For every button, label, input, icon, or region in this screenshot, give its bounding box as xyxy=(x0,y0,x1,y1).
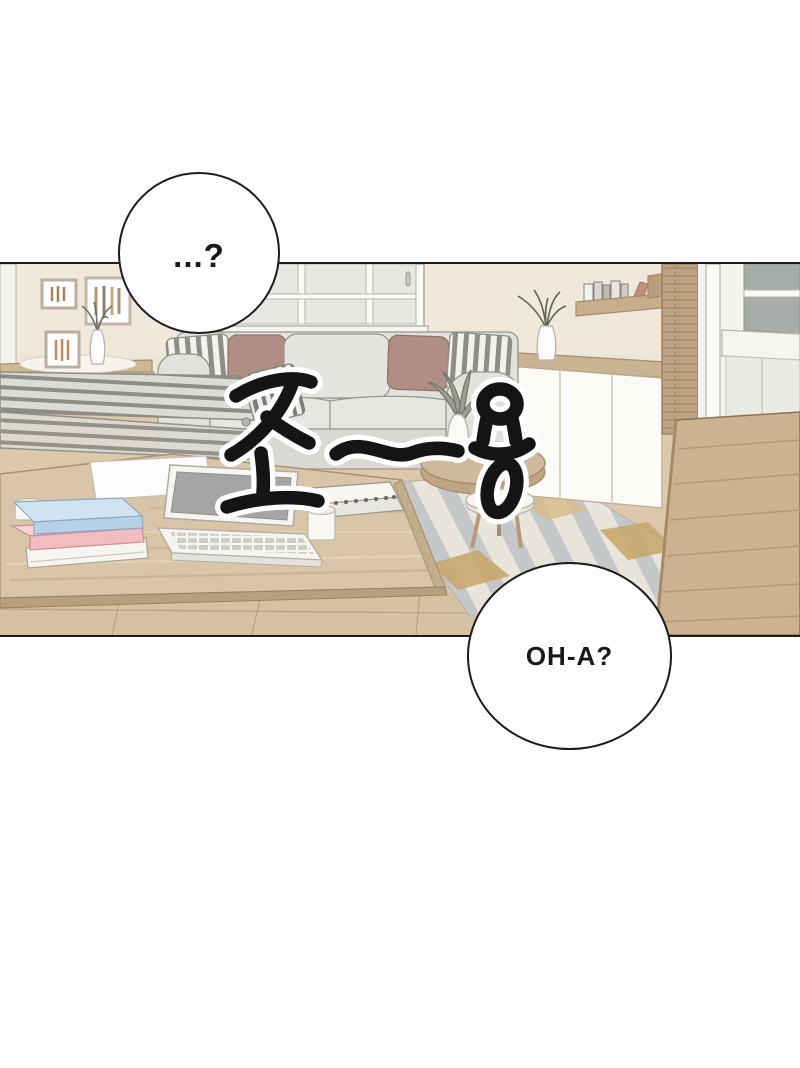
speech-bubble-top: ...? xyxy=(118,172,280,334)
speech-bubble-top-text: ...? xyxy=(173,231,225,275)
book-stack xyxy=(12,498,148,568)
living-room-scene xyxy=(0,264,800,635)
mauve-pillow-right xyxy=(387,335,449,391)
comic-panel xyxy=(0,262,800,637)
speech-bubble-bottom: OH-A? xyxy=(467,562,672,750)
speech-bubble-bottom-text: OH-A? xyxy=(526,641,613,672)
comic-page: ...? OH-A? xyxy=(0,0,800,1068)
wood-partition-panel xyxy=(656,412,800,635)
wood-partition-column xyxy=(662,264,698,434)
window-latch xyxy=(406,272,410,286)
